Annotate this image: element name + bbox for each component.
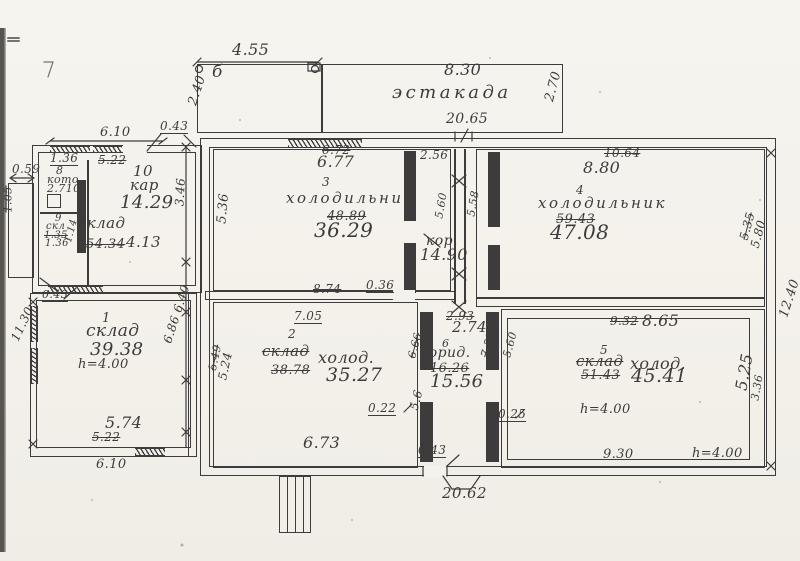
room10-area: 14.29 xyxy=(120,194,174,212)
corridor-upper-dim-top: 2.56 xyxy=(420,149,448,161)
porch-dim-width: 0.59 xyxy=(12,163,40,175)
building-dim-width-bottom: 20.62 xyxy=(442,486,487,501)
building-dim-width-top: 20.65 xyxy=(446,112,488,126)
room2-area: 35.27 xyxy=(326,366,382,385)
corridor-lower-dim-top: 2.74 xyxy=(452,320,487,335)
room10-dim-door: 1.36 xyxy=(50,152,78,166)
room1-name: склад xyxy=(86,323,139,340)
section-mark: б xyxy=(212,64,223,81)
room3-dim-door: 0.36 xyxy=(366,279,394,293)
room1-dim-outside-bottom: 6.10 xyxy=(96,458,127,471)
room2-number: 2 xyxy=(288,328,296,340)
room2-dim-door: 0.22 xyxy=(368,402,396,416)
room3-name: холодильник xyxy=(286,191,415,206)
dim-346: 3.46 xyxy=(173,178,186,207)
room5-dim-top-struck: 9.32 xyxy=(610,315,638,327)
room2-area-struck: 38.78 xyxy=(271,364,310,377)
room5-area-struck: 51.43 xyxy=(581,369,620,382)
room5-area: 45.41 xyxy=(631,367,687,386)
room3-dim-bottom-struck: 8.74 xyxy=(313,283,341,295)
room5-height-bottom: h=4.00 xyxy=(692,447,743,460)
platform-dim-width-right: 8.30 xyxy=(444,62,481,78)
room3-number: 3 xyxy=(322,176,330,188)
room10-name: кар xyxy=(130,178,159,193)
room3-dim-left: 5.36 xyxy=(215,193,231,225)
dim-wall-043: 0.43 xyxy=(160,120,188,134)
storeroom-area: 4.13 xyxy=(126,235,161,250)
room5-dim-bottom: 9.30 xyxy=(603,448,634,461)
corridor-lower-area: 15.56 xyxy=(430,373,484,391)
storeroom-name: склад xyxy=(78,216,125,231)
room4-dim-top: 8.80 xyxy=(583,160,620,176)
room4-area: 47.08 xyxy=(550,222,609,242)
room4-name: холодильник xyxy=(538,196,667,211)
scanned-floor-plan: б 4.55 8.30 эстакада 2.70 2.40 20.65 20.… xyxy=(0,0,800,561)
platform-dim-width-left: 4.55 xyxy=(232,42,269,58)
room3-dim-top: 6.77 xyxy=(317,154,354,170)
corridor-lower-name: корид. xyxy=(420,346,471,360)
room2-name-struck: склад xyxy=(262,344,309,359)
annex-dim-top: 6.10 xyxy=(100,126,131,139)
room1-height: h=4.00 xyxy=(78,358,129,371)
storeroom-area-struck: 54.34 xyxy=(86,238,125,251)
room5-height: h=4.00 xyxy=(580,403,631,416)
room1-dim-bottom: 5.74 xyxy=(105,415,142,431)
room2-dim-bottom: 6.73 xyxy=(303,435,340,451)
corridor-upper-area: 14.90 xyxy=(420,247,468,263)
room1-dim-wall-top: 0.43 xyxy=(42,289,68,302)
room2-dim-top: 7.05 xyxy=(294,310,322,324)
room10-dim-struck: 5.22 xyxy=(98,154,126,166)
room3-area: 36.29 xyxy=(314,220,373,240)
room8-area: 2.710 xyxy=(47,183,81,194)
room5-dim-top: 8.65 xyxy=(642,313,679,329)
corridor-lower-dim-door-right: 0.25 xyxy=(498,408,526,422)
corridor-lower-dim-door-bottom: 0.43 xyxy=(418,444,446,458)
platform-name: эстакада xyxy=(392,84,512,102)
room5-name-struck: склад xyxy=(576,354,623,369)
room1-dim-bottom-struck: 5.22 xyxy=(92,431,120,443)
porch-dim-height: 1.05 xyxy=(3,186,14,212)
